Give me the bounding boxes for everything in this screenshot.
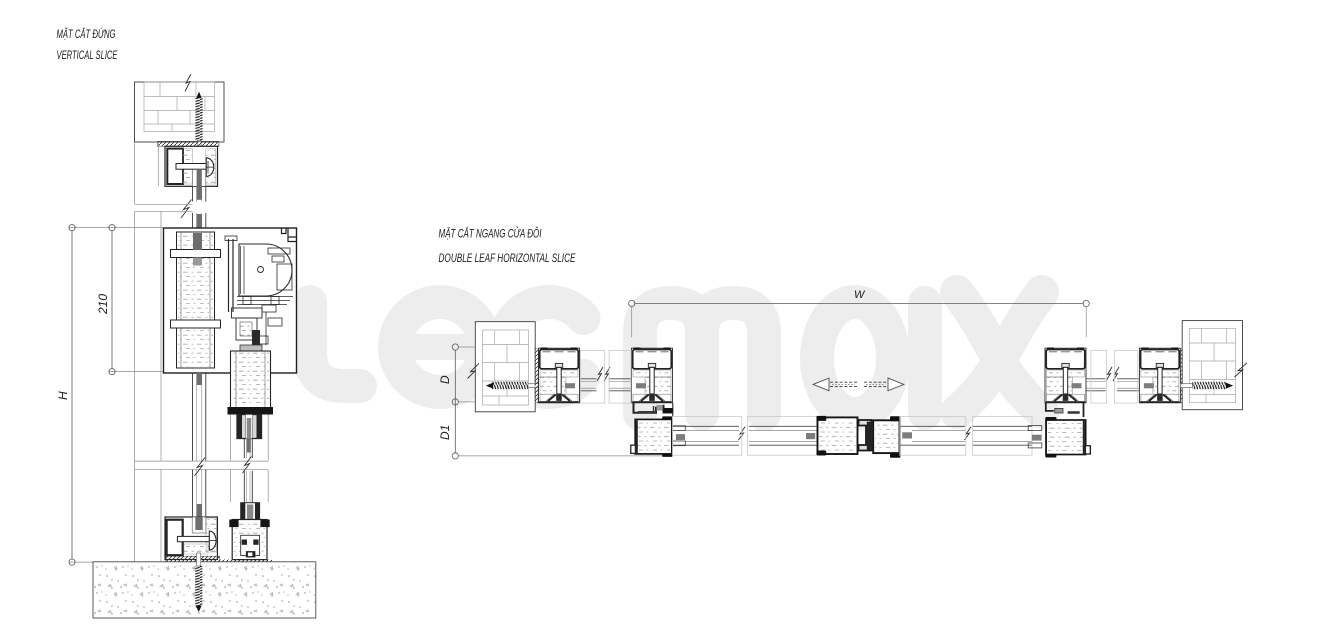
svg-text:D: D [438,375,452,384]
svg-text:DOUBLE LEAF HORIZONTAL SLICE: DOUBLE LEAF HORIZONTAL SLICE [439,251,577,265]
svg-text:MẶT CẮT NGANG CỬA ĐÔI: MẶT CẮT NGANG CỬA ĐÔI [439,226,542,241]
svg-text:W: W [854,289,866,301]
svg-text:VERTICAL SLICE: VERTICAL SLICE [57,48,119,62]
svg-text:H: H [56,391,70,400]
svg-text:MẶT CẮT ĐỨNG: MẶT CẮT ĐỨNG [57,26,116,41]
svg-text:210: 210 [96,294,110,315]
svg-text:D1: D1 [438,425,452,440]
